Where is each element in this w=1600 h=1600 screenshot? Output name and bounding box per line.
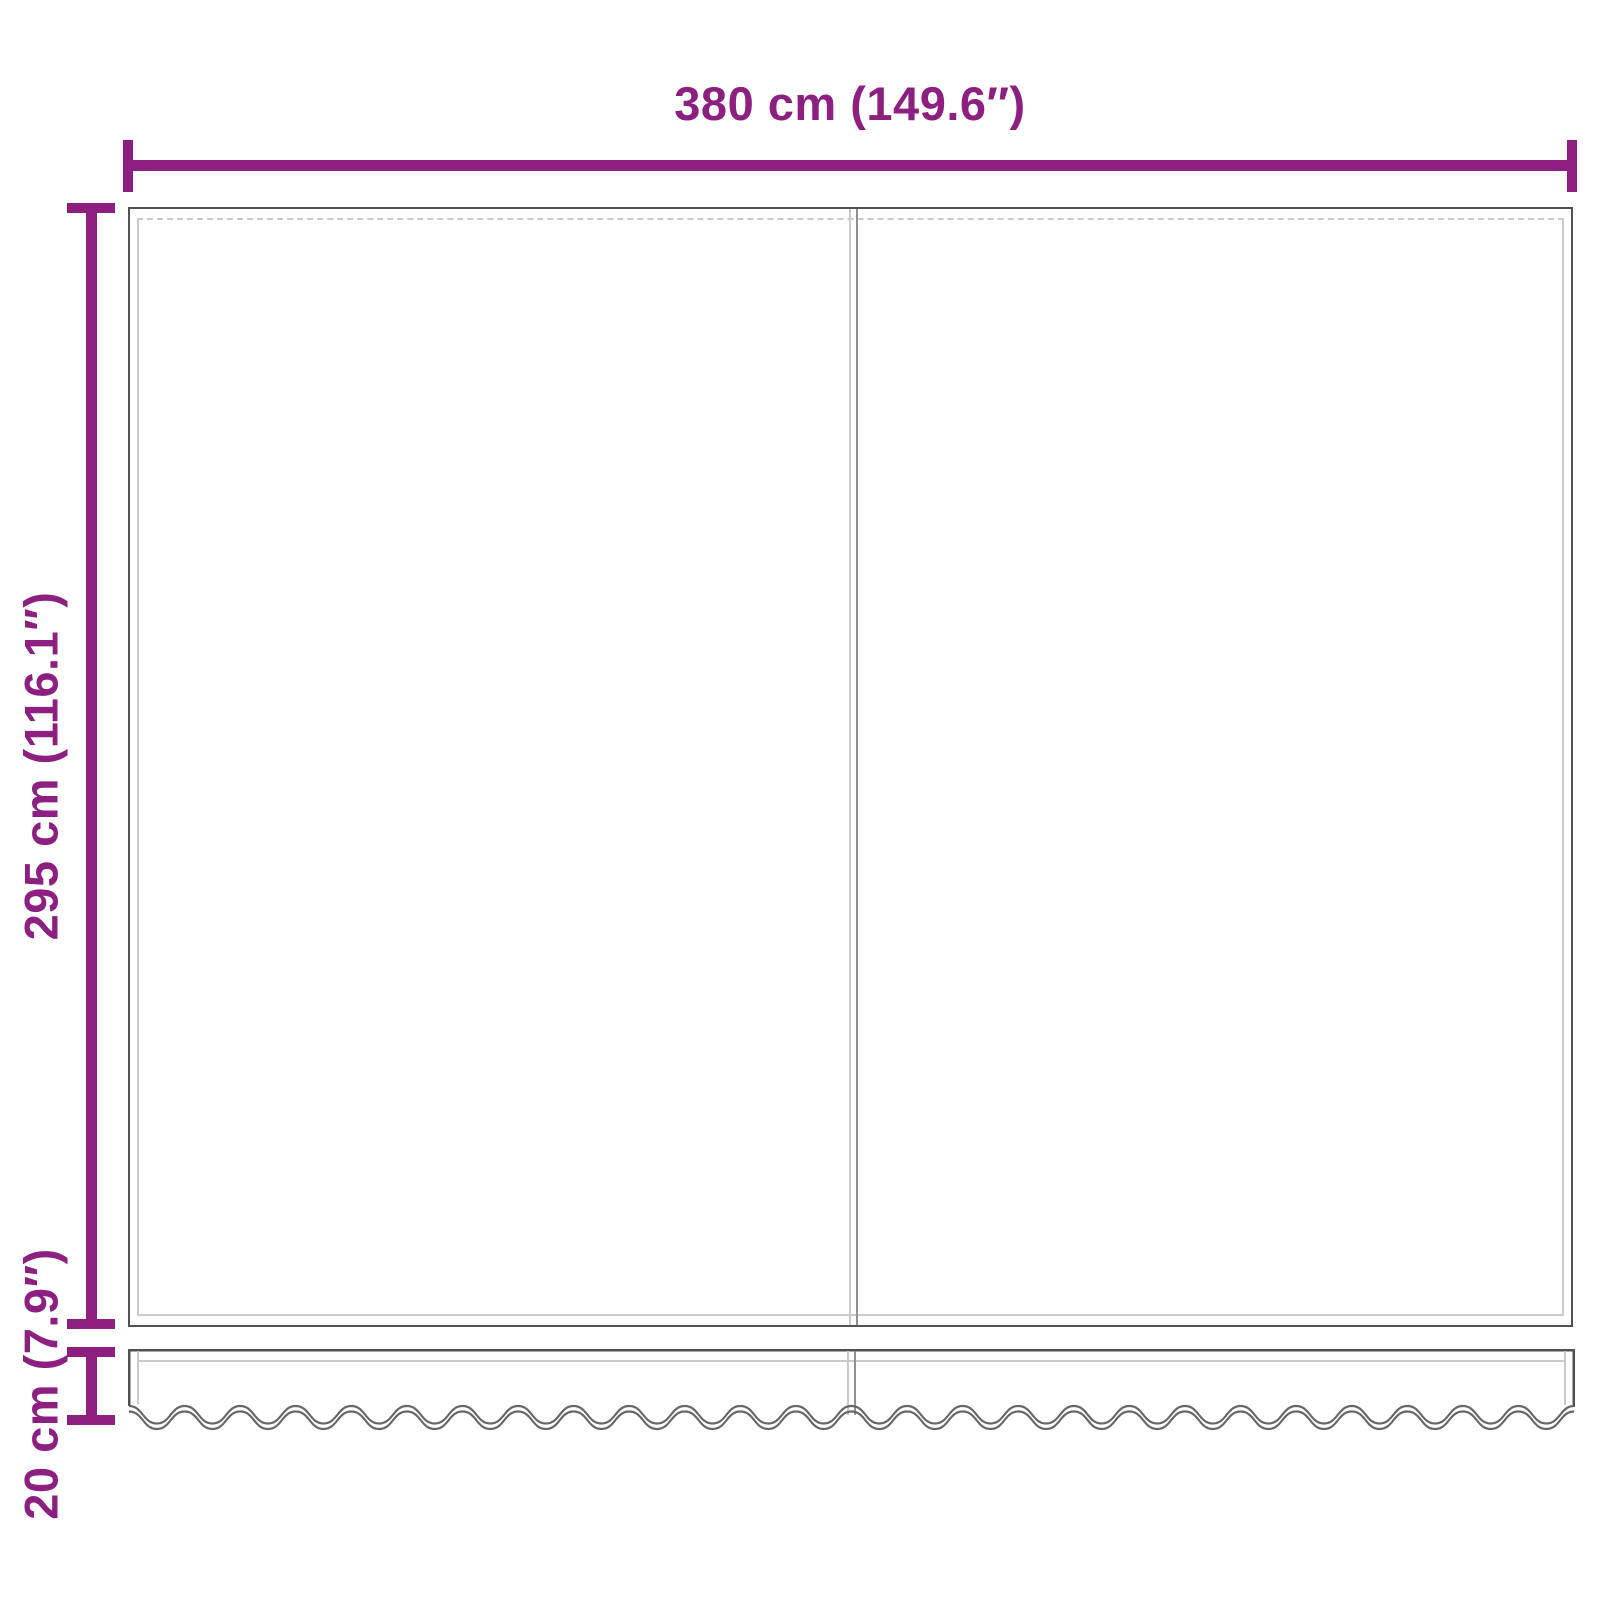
- diagram-canvas: 380 cm (149.6″) 295 cm (116.1″) 20 cm (7…: [0, 0, 1600, 1600]
- height-dimension-label: 295 cm (116.1″): [14, 592, 69, 941]
- height-dim-cap-top: [67, 203, 115, 213]
- valance-dimension-line: [86, 1351, 97, 1422]
- valance-dimension-label: 20 cm (7.9″): [14, 1248, 69, 1519]
- valance-dim-cap-bottom: [67, 1415, 115, 1425]
- valance-wave-outer-line: [129, 1406, 1574, 1424]
- valance-strip: [128, 1349, 1575, 1449]
- valance-dim-cap-top: [67, 1347, 115, 1357]
- fabric-seam-dark-line: [856, 209, 858, 1325]
- awning-fabric-panel: [128, 207, 1573, 1327]
- fabric-seam-light-line: [849, 209, 851, 1325]
- width-dim-cap-left: [123, 140, 133, 192]
- width-dimension-label: 380 cm (149.6″): [674, 76, 1025, 131]
- valance-wave-inner-line: [129, 1412, 1574, 1430]
- height-dim-cap-bottom: [67, 1319, 115, 1329]
- width-dimension-line: [128, 160, 1572, 171]
- width-dim-cap-right: [1567, 140, 1577, 192]
- height-dimension-line: [86, 207, 97, 1325]
